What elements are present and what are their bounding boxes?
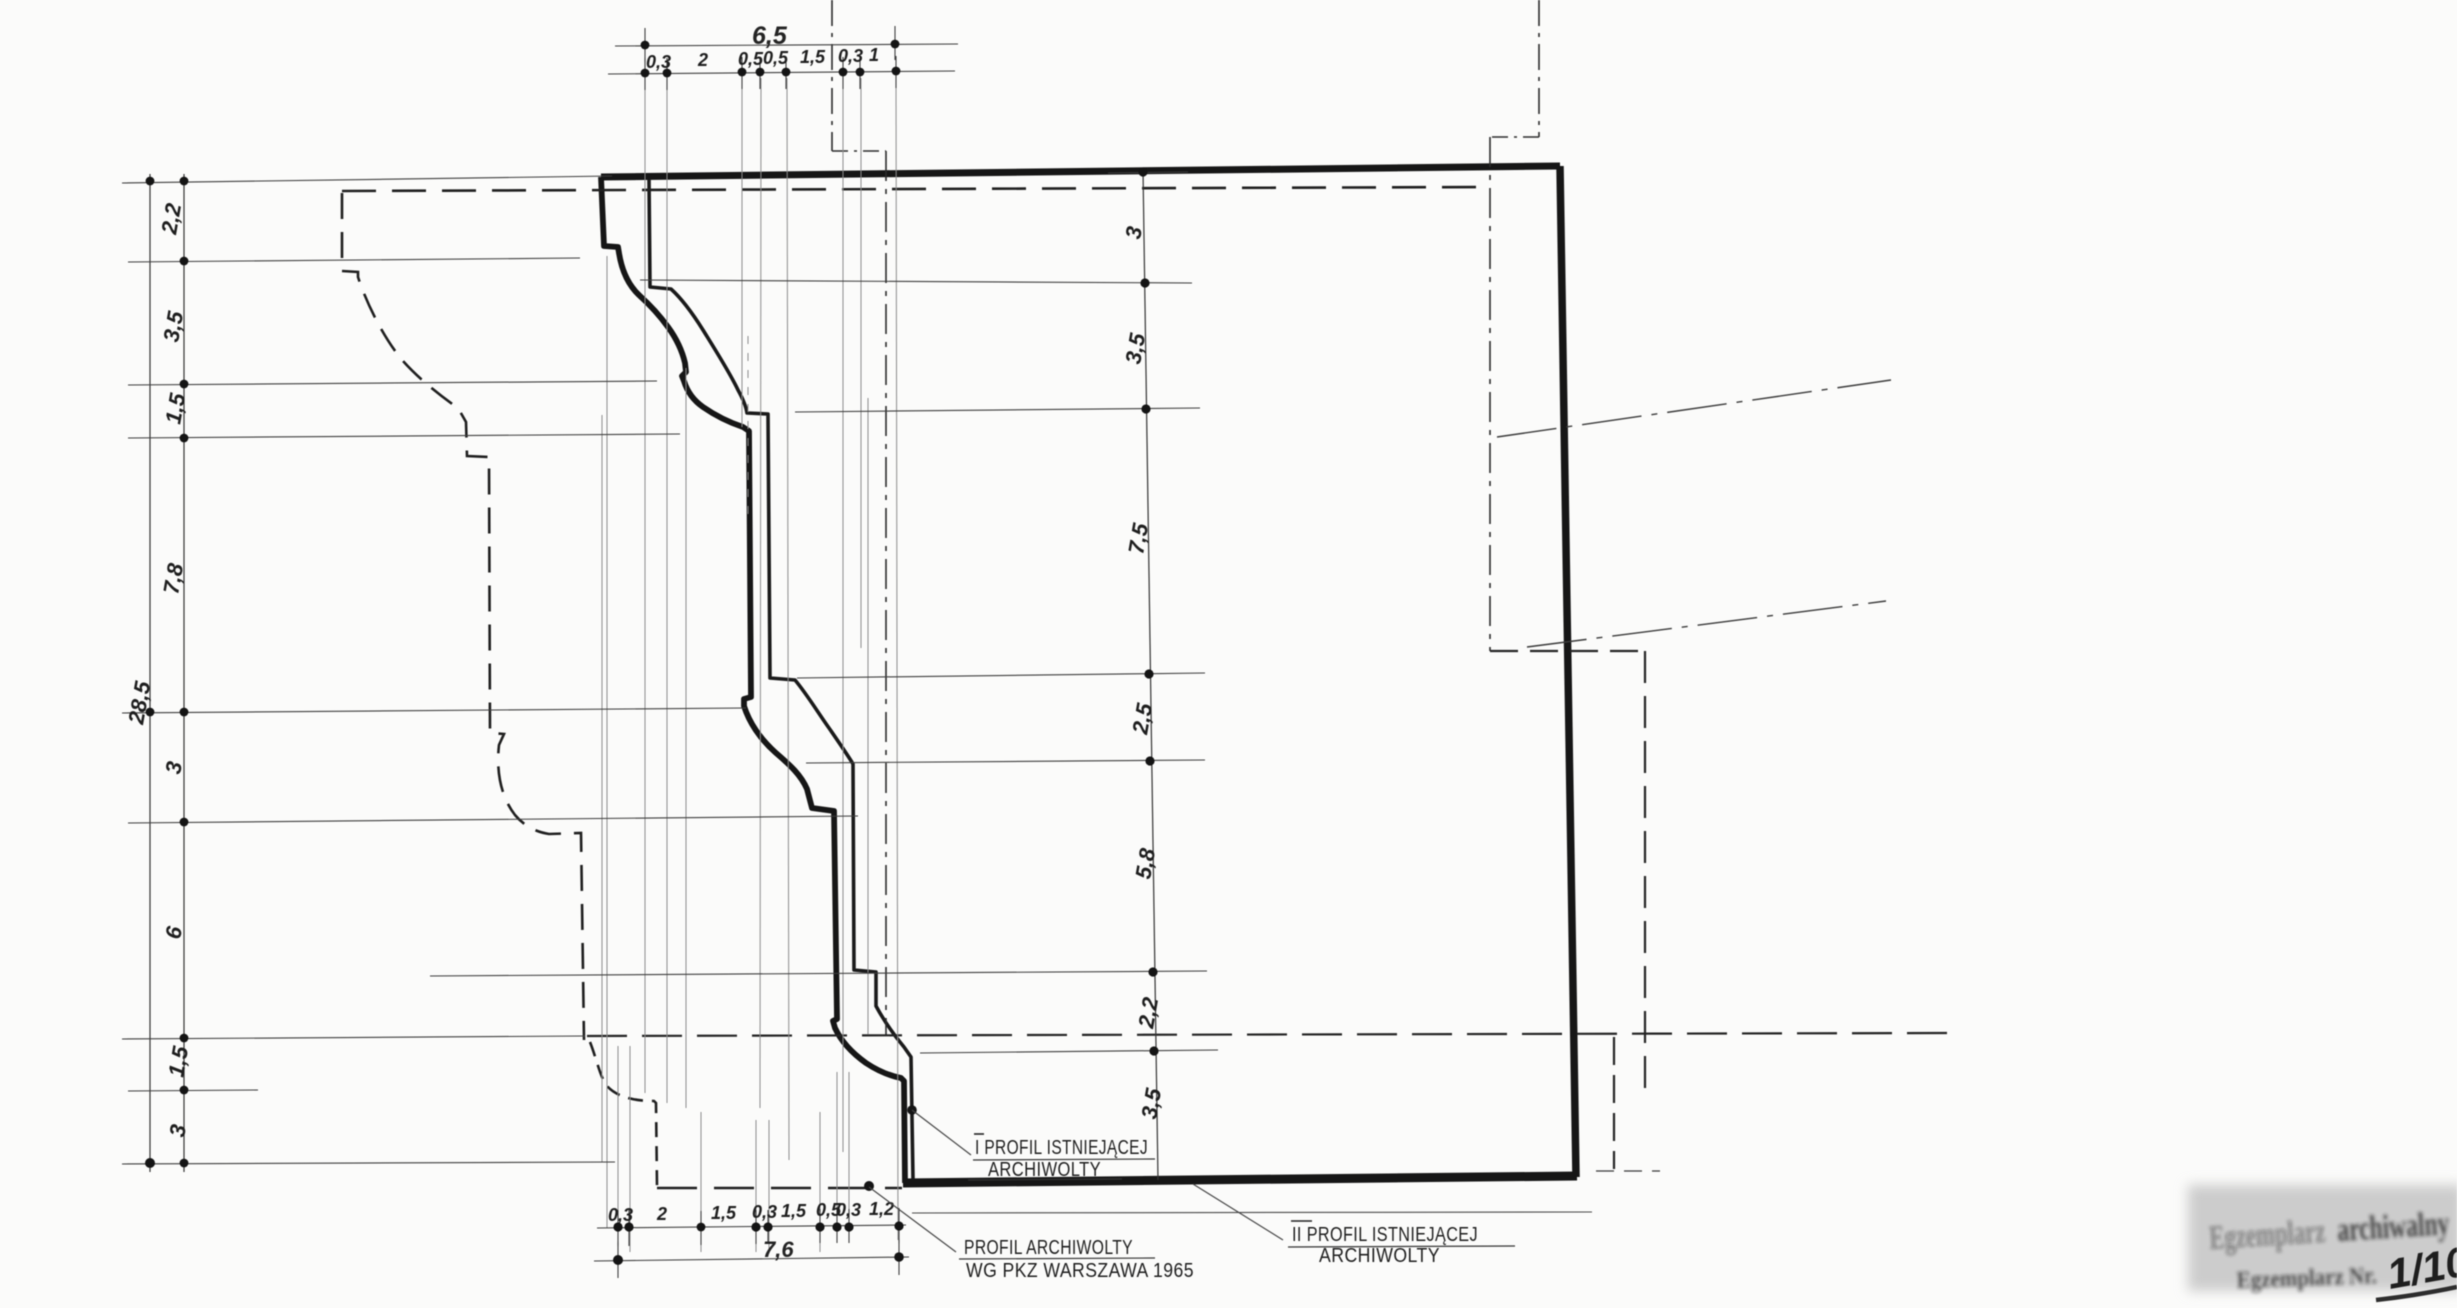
svg-text:II PROFIL ISTNIEJĄCEJ: II PROFIL ISTNIEJĄCEJ (1292, 1223, 1478, 1246)
svg-text:3: 3 (160, 759, 187, 775)
svg-text:6,5: 6,5 (752, 22, 788, 50)
svg-text:1,5: 1,5 (711, 1203, 737, 1223)
svg-text:3: 3 (1120, 224, 1147, 240)
svg-text:0,3: 0,3 (838, 46, 863, 66)
svg-text:0,5: 0,5 (738, 49, 764, 69)
svg-text:6: 6 (160, 924, 187, 941)
svg-text:PROFIL ARCHIWOLTY: PROFIL ARCHIWOLTY (964, 1236, 1133, 1259)
svg-text:ARCHIWOLTY: ARCHIWOLTY (988, 1158, 1101, 1181)
svg-text:0,3: 0,3 (836, 1200, 861, 1220)
svg-text:2: 2 (656, 1204, 667, 1224)
svg-text:Egzemplarz: Egzemplarz (2208, 1213, 2326, 1257)
svg-text:3,5: 3,5 (1136, 1086, 1166, 1121)
svg-text:1,5: 1,5 (163, 1044, 193, 1079)
svg-text:2: 2 (697, 50, 708, 70)
svg-text:ARCHIWOLTY: ARCHIWOLTY (1319, 1244, 1440, 1267)
svg-text:Egzemplarz Nr.: Egzemplarz Nr. (2236, 1263, 2377, 1294)
svg-text:1,5: 1,5 (800, 47, 826, 67)
svg-text:WG PKZ WARSZAWA 1965: WG PKZ WARSZAWA 1965 (966, 1259, 1194, 1282)
svg-text:1: 1 (869, 45, 879, 65)
svg-text:1,2: 1,2 (869, 1199, 894, 1219)
svg-text:1,5: 1,5 (160, 391, 190, 426)
svg-text:5,8: 5,8 (1130, 846, 1160, 881)
svg-text:1,5: 1,5 (781, 1201, 807, 1221)
svg-text:3: 3 (164, 1122, 191, 1138)
svg-text:2,5: 2,5 (1127, 701, 1157, 737)
svg-text:28,5: 28,5 (123, 679, 155, 727)
svg-text:0,3: 0,3 (608, 1205, 633, 1225)
svg-text:0,3: 0,3 (752, 1202, 777, 1222)
svg-text:2,2: 2,2 (156, 201, 186, 237)
svg-text:2,2: 2,2 (1133, 995, 1163, 1031)
svg-text:0,5: 0,5 (763, 48, 789, 68)
svg-text:I PROFIL ISTNIEJĄCEJ: I PROFIL ISTNIEJĄCEJ (975, 1136, 1148, 1159)
svg-text:7,6: 7,6 (763, 1237, 794, 1262)
